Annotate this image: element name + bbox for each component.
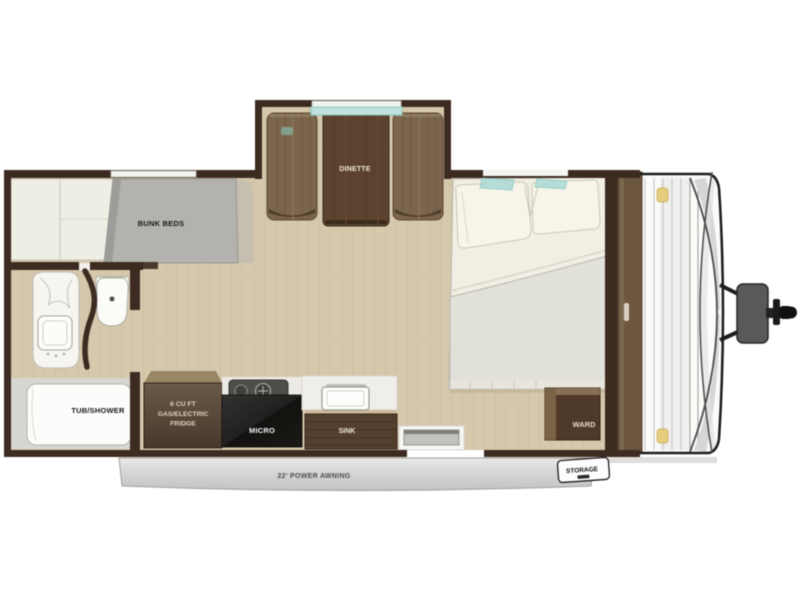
svg-text:DINETTE: DINETTE [339,166,370,173]
svg-text:WARD: WARD [573,420,596,429]
svg-text:SINK: SINK [339,428,356,435]
svg-text:6 CU FT: 6 CU FT [170,401,197,408]
svg-text:MICRO: MICRO [249,426,275,435]
svg-text:TUB/SHOWER: TUB/SHOWER [71,406,125,415]
svg-text:FRIDGE: FRIDGE [170,421,196,428]
svg-text:22' POWER AWNING: 22' POWER AWNING [277,473,350,480]
svg-text:BUNK BEDS: BUNK BEDS [138,219,184,228]
svg-text:GAS/ELECTRIC: GAS/ELECTRIC [158,411,209,418]
